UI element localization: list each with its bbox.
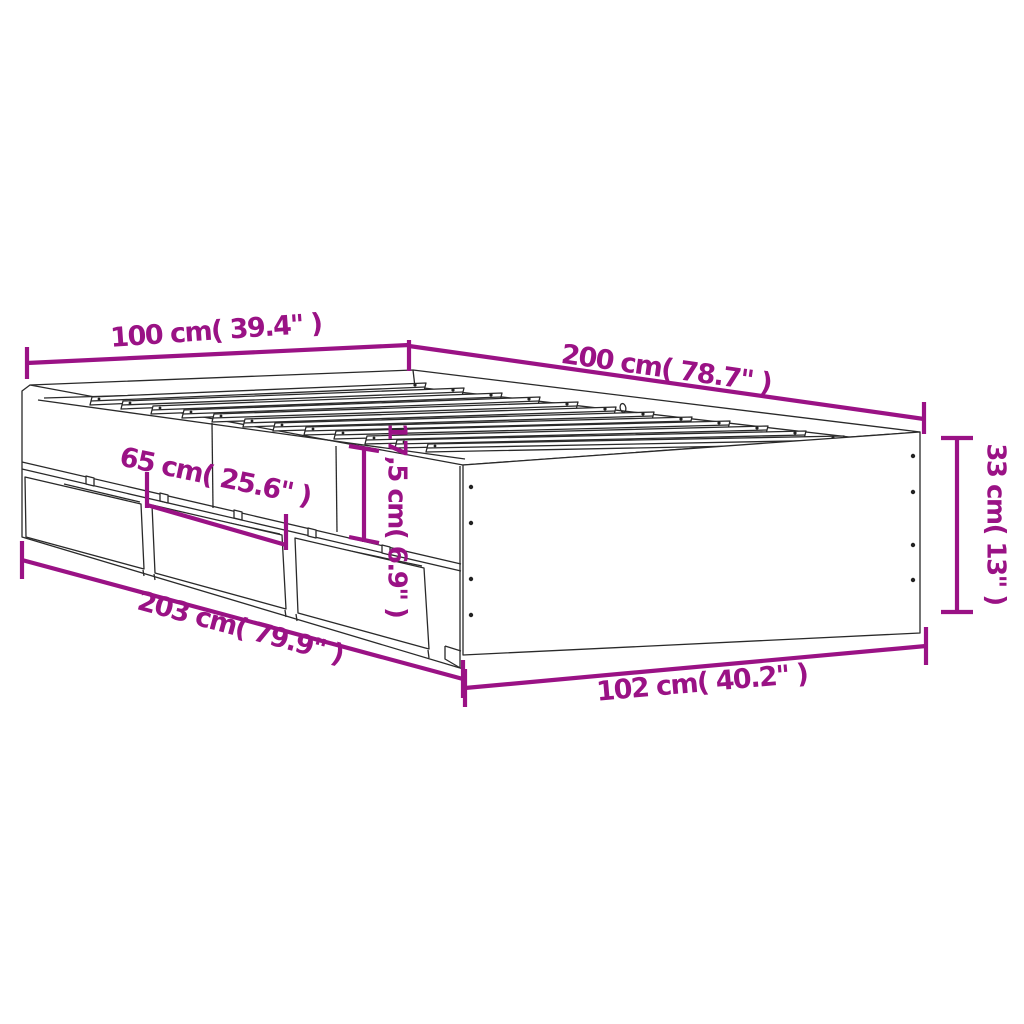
dim-label-frame-height: 33 cm( 13" ) <box>981 443 1011 604</box>
rail-tab <box>86 476 94 486</box>
dim-label-head-width: 100 cm( 39.4" ) <box>109 308 322 354</box>
dimension-frame-height: 33 cm( 13" ) <box>941 438 1011 612</box>
dimension-head-width: 100 cm( 39.4" ) <box>27 308 409 379</box>
bed-dimension-diagram: 100 cm( 39.4" ) 200 cm( 78.7" ) 33 cm( 1… <box>0 0 1024 1024</box>
diagram-canvas: 100 cm( 39.4" ) 200 cm( 78.7" ) 33 cm( 1… <box>0 0 1024 1024</box>
rail-tab <box>234 510 242 520</box>
bed-line-art <box>22 370 920 669</box>
rail-tab <box>160 493 168 503</box>
dim-label-side-length: 200 cm( 78.7" ) <box>559 339 773 399</box>
dim-label-rail-height: 17,5 cm( 6.9" ) <box>382 423 412 618</box>
rail-tab <box>308 528 316 538</box>
foot-panel <box>445 432 920 669</box>
